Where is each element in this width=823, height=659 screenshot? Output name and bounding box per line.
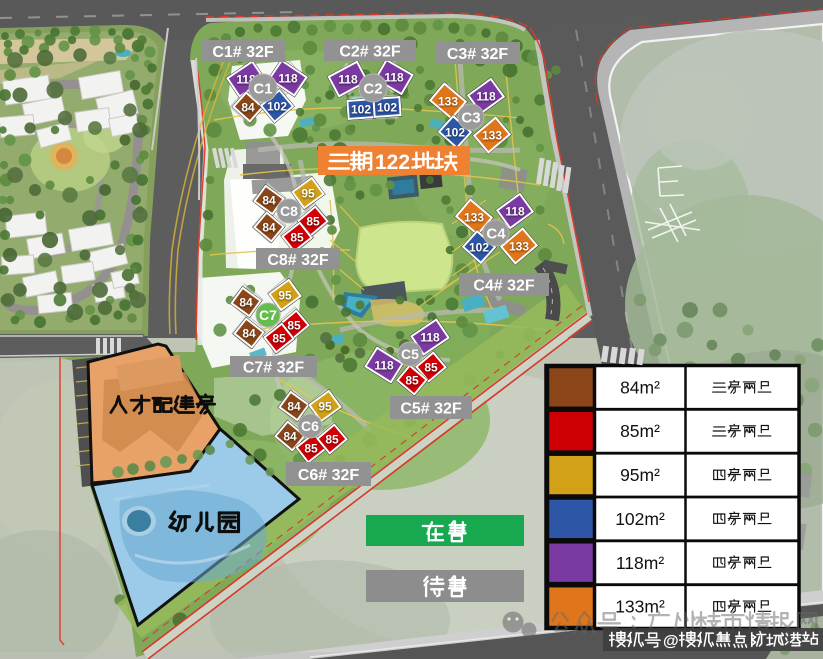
svg-text:118: 118	[338, 72, 358, 86]
svg-text:C6# 32F: C6# 32F	[298, 467, 360, 484]
svg-text:95: 95	[278, 288, 292, 302]
svg-text:C3: C3	[461, 109, 480, 126]
svg-text:84: 84	[287, 399, 301, 413]
svg-text:85m²: 85m²	[620, 421, 660, 441]
svg-text:102: 102	[445, 125, 465, 139]
svg-text:85: 85	[304, 441, 318, 455]
svg-text:84: 84	[242, 326, 256, 340]
svg-text:133m²: 133m²	[615, 597, 665, 617]
svg-text:118: 118	[384, 70, 404, 84]
svg-text:122: 122	[375, 151, 410, 174]
svg-text:102m²: 102m²	[615, 509, 665, 529]
svg-text:C4# 32F: C4# 32F	[473, 277, 535, 294]
svg-text:102: 102	[351, 102, 371, 116]
svg-text:133: 133	[464, 210, 484, 224]
svg-text:85: 85	[325, 432, 339, 446]
svg-text:C6: C6	[301, 418, 319, 434]
svg-text:133: 133	[509, 239, 529, 253]
svg-text:95m²: 95m²	[620, 465, 660, 485]
svg-text:85: 85	[405, 373, 419, 387]
svg-text:118: 118	[278, 71, 298, 85]
svg-text:102: 102	[377, 100, 397, 114]
svg-text:133: 133	[482, 128, 502, 142]
svg-text:84m²: 84m²	[620, 377, 660, 397]
svg-text:85: 85	[306, 214, 320, 228]
svg-text:85: 85	[290, 230, 304, 244]
svg-text:C3# 32F: C3# 32F	[447, 46, 509, 63]
svg-text:118: 118	[476, 89, 496, 103]
svg-text:84: 84	[262, 220, 276, 234]
svg-text:C4: C4	[486, 225, 506, 242]
svg-text:C7: C7	[259, 307, 277, 323]
svg-text:C5: C5	[401, 346, 419, 362]
svg-text:C5# 32F: C5# 32F	[400, 400, 462, 417]
svg-text:C2# 32F: C2# 32F	[339, 43, 401, 60]
svg-text:102: 102	[267, 99, 287, 113]
svg-text:118: 118	[374, 358, 394, 372]
svg-text:C8: C8	[280, 203, 298, 219]
svg-text:C1: C1	[253, 80, 272, 97]
svg-text:84: 84	[262, 193, 276, 207]
svg-text:C8# 32F: C8# 32F	[267, 252, 329, 269]
svg-text:C2: C2	[363, 80, 382, 97]
svg-text:85: 85	[287, 318, 301, 332]
svg-text:84: 84	[239, 295, 253, 309]
svg-text:118m²: 118m²	[616, 553, 664, 573]
svg-text:95: 95	[318, 399, 332, 413]
svg-text:C1# 32F: C1# 32F	[212, 44, 274, 61]
svg-text:84: 84	[283, 429, 297, 443]
svg-text:118: 118	[505, 204, 525, 218]
svg-text:C7# 32F: C7# 32F	[243, 359, 305, 376]
svg-text:84: 84	[241, 100, 255, 114]
svg-text:@: @	[663, 633, 679, 650]
svg-text:85: 85	[272, 331, 286, 345]
svg-text:85: 85	[424, 360, 438, 374]
svg-text:133: 133	[438, 94, 458, 108]
svg-text:118: 118	[420, 330, 440, 344]
svg-text:95: 95	[301, 186, 315, 200]
